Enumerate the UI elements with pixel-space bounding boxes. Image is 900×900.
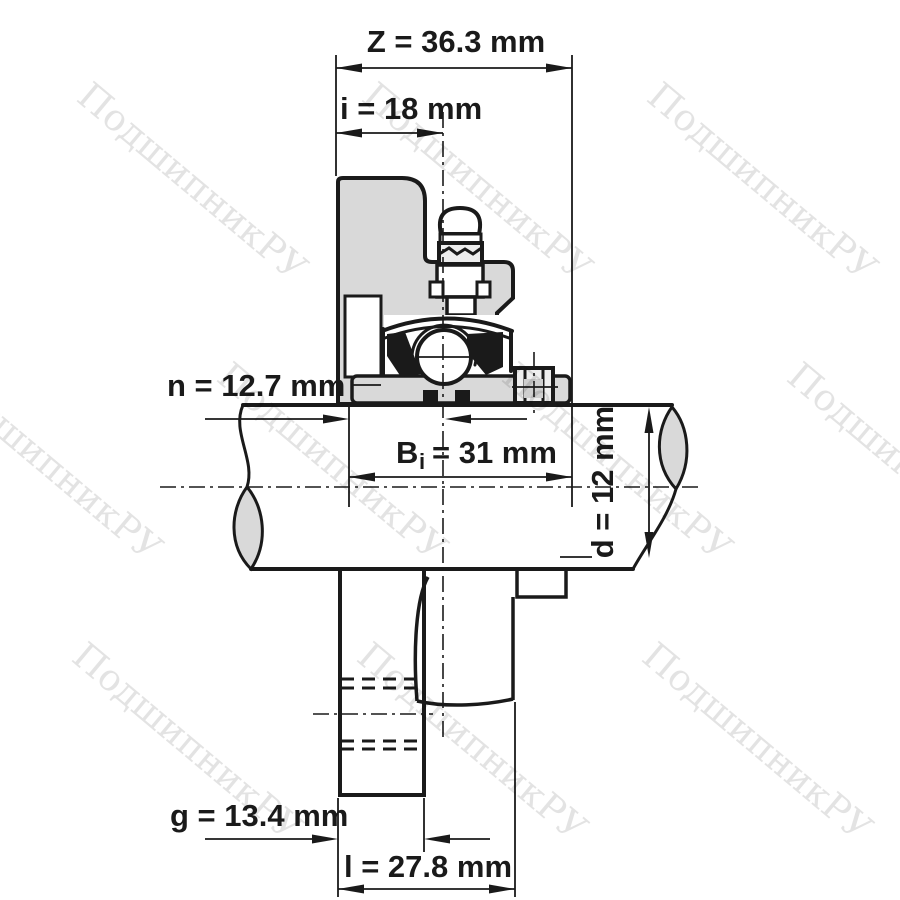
raceway-shoulder-right <box>455 390 470 403</box>
watermark-text: ПодшипникРУ <box>69 74 315 290</box>
dim-label-bi-value: = 31 mm <box>432 435 557 470</box>
thread-tab-left <box>430 282 443 297</box>
watermark-text: ПодшипникРУ <box>0 354 170 570</box>
watermark-text: ПодшипникРУ <box>779 354 900 570</box>
watermark-text: ПодшипникРУ <box>634 634 880 850</box>
dim-label-bi-prefix: B <box>396 435 418 470</box>
dimension-g: g = 13.4 mm <box>170 798 490 844</box>
dimension-bi: B i = 31 mm <box>349 435 572 482</box>
dimension-l: l = 27.8 mm <box>338 849 515 894</box>
spigot-step <box>517 570 566 597</box>
bearing-drawing: Z = 36.3 mm i = 18 mm n = 12.7 mm B i = … <box>0 0 900 900</box>
thread-tab-right <box>477 282 490 297</box>
technical-drawing-page: Z = 36.3 mm i = 18 mm n = 12.7 mm B i = … <box>0 0 900 900</box>
dim-label-l: l = 27.8 mm <box>344 849 512 884</box>
dimension-z: Z = 36.3 mm <box>336 24 572 73</box>
flange-bolt-hole <box>345 296 381 377</box>
watermark-text: ПодшипникРУ <box>639 74 885 290</box>
grease-duct <box>447 297 475 315</box>
dim-label-bi-sub: i <box>419 449 425 474</box>
shaft-break-lens-left <box>234 487 262 569</box>
grease-fitting-dome <box>440 208 480 234</box>
dim-label-z: Z = 36.3 mm <box>367 24 545 59</box>
raceway-shoulder-left <box>423 390 438 403</box>
